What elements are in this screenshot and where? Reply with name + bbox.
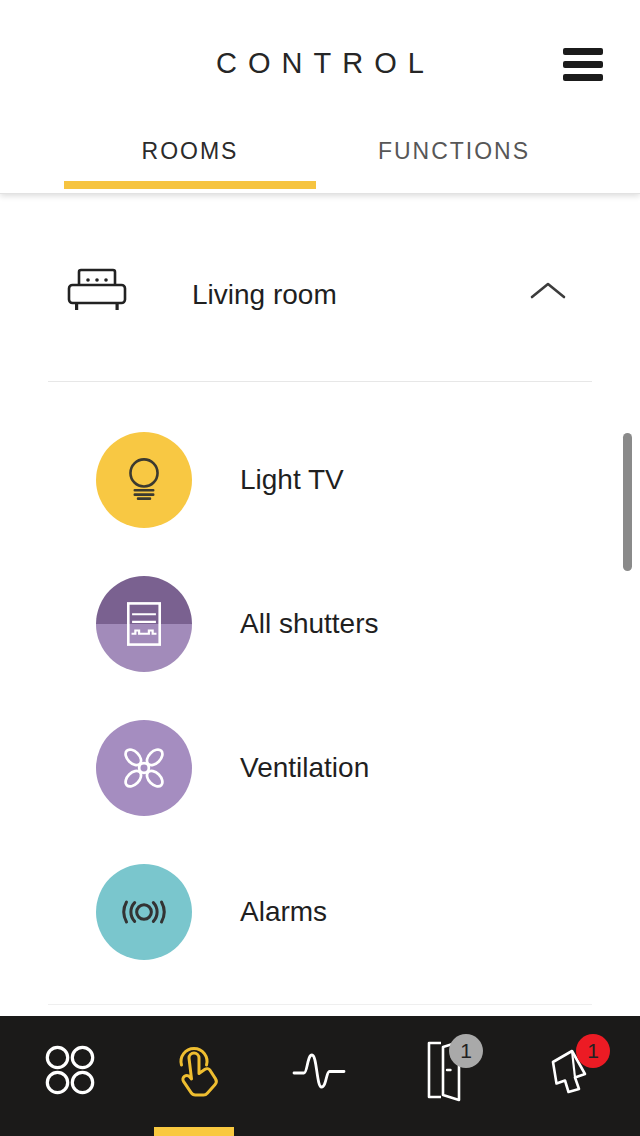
tap-hand-icon	[165, 1088, 223, 1103]
device-label: All shutters	[240, 576, 379, 672]
door-icon	[420, 1090, 468, 1105]
scrollbar-thumb[interactable]	[623, 433, 632, 571]
menu-button[interactable]	[563, 46, 603, 82]
device-label: Ventilation	[240, 720, 369, 816]
header: CONTROL ROOMS FUNCTIONS	[0, 0, 640, 194]
alarm-badge: 1	[576, 1034, 610, 1068]
door-badge: 1	[449, 1034, 483, 1068]
pulse-wave-icon	[291, 1086, 347, 1101]
sofa-icon	[66, 264, 128, 320]
device-label: Alarms	[240, 864, 327, 960]
room-name: Living room	[192, 250, 337, 340]
room-header-living-room[interactable]: Living room	[0, 250, 640, 340]
device-label: Light TV	[240, 432, 344, 528]
bottom-nav: 1 1	[0, 1016, 640, 1136]
page-title: CONTROL	[0, 47, 640, 80]
light-bulb-icon[interactable]	[96, 432, 192, 528]
active-tab-indicator	[64, 181, 316, 189]
tab-functions[interactable]: FUNCTIONS	[320, 137, 588, 166]
tab-rooms[interactable]: ROOMS	[64, 137, 316, 166]
fan-icon[interactable]	[96, 720, 192, 816]
shutters-icon[interactable]	[96, 576, 192, 672]
grid-circles-icon	[44, 1084, 96, 1099]
device-row-all-shutters[interactable]: All shutters	[0, 576, 600, 672]
divider	[48, 381, 592, 382]
device-row-ventilation[interactable]: Ventilation	[0, 720, 600, 816]
nav-control-button[interactable]	[165, 1036, 223, 1103]
hamburger-icon	[563, 48, 603, 81]
alarm-waves-icon[interactable]	[96, 864, 192, 960]
active-nav-indicator	[154, 1127, 234, 1136]
megaphone-icon	[541, 1086, 597, 1101]
device-row-alarms[interactable]: Alarms	[0, 864, 600, 960]
divider	[48, 1004, 592, 1005]
nav-apps-button[interactable]	[44, 1044, 96, 1099]
chevron-up-icon[interactable]	[528, 280, 568, 306]
device-row-light-tv[interactable]: Light TV	[0, 432, 600, 528]
nav-events-button[interactable]	[291, 1042, 347, 1101]
app-screen: CONTROL ROOMS FUNCTIONS Living room	[0, 0, 640, 1136]
